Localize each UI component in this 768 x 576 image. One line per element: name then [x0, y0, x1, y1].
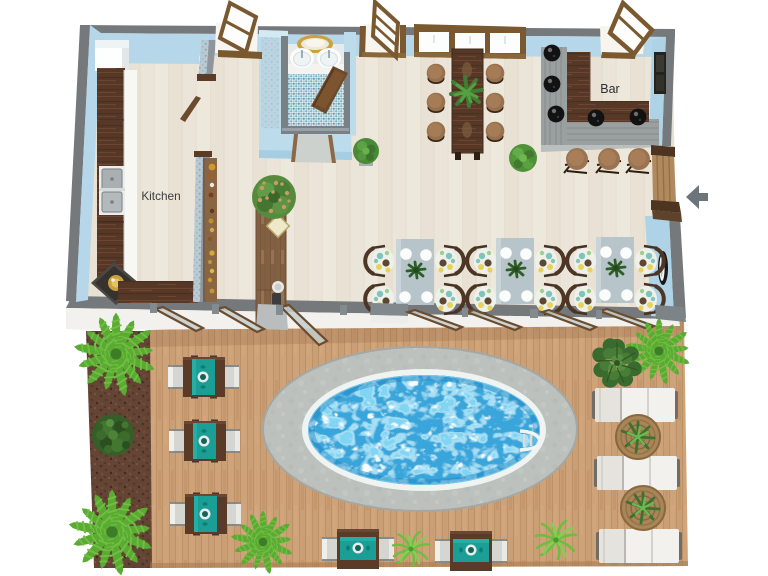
svg-text:Bar: Bar	[600, 82, 619, 96]
svg-text:Kitchen: Kitchen	[141, 189, 180, 203]
